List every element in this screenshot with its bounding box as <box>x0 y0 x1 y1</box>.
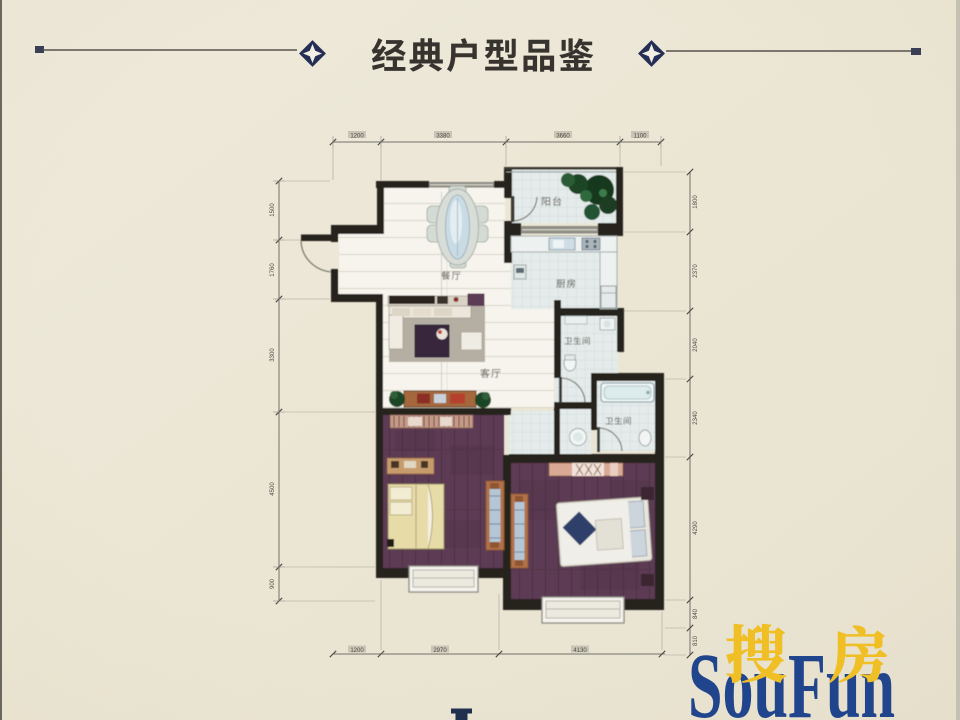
svg-text:2040: 2040 <box>693 338 699 352</box>
svg-text:900: 900 <box>270 578 276 589</box>
svg-text:2970: 2970 <box>433 648 447 654</box>
svg-text:1200: 1200 <box>350 648 364 654</box>
svg-text:3380: 3380 <box>436 134 450 140</box>
svg-text:840: 840 <box>693 608 699 619</box>
svg-text:4290: 4290 <box>693 521 699 535</box>
svg-text:4130: 4130 <box>573 648 587 654</box>
svg-text:1100: 1100 <box>634 134 648 140</box>
svg-text:3660: 3660 <box>556 134 570 140</box>
svg-text:4500: 4500 <box>270 482 276 496</box>
svg-text:3300: 3300 <box>270 348 276 362</box>
svg-text:1800: 1800 <box>693 195 699 209</box>
svg-text:1200: 1200 <box>350 134 364 140</box>
svg-text:2370: 2370 <box>693 264 699 278</box>
svg-text:1500: 1500 <box>270 203 276 217</box>
svg-text:2340: 2340 <box>693 411 699 425</box>
svg-text:1760: 1760 <box>270 263 276 277</box>
